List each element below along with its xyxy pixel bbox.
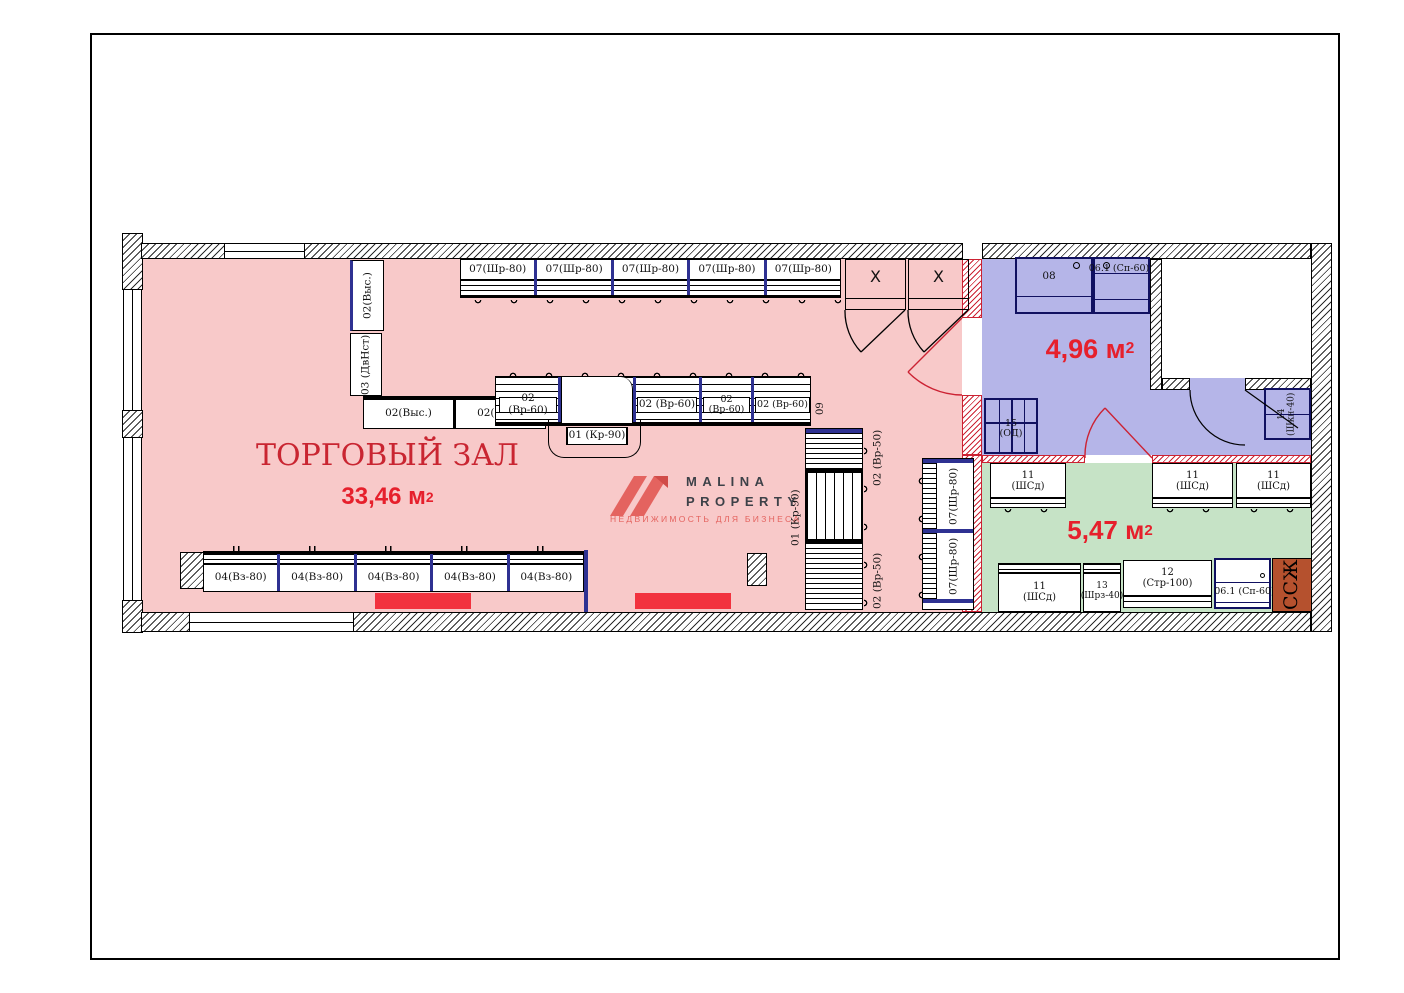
fitting-room-door-1: [845, 310, 905, 352]
fitting-room-door-2: [908, 310, 968, 352]
logo-m-icon: [606, 472, 678, 518]
logo: MALINA PROPERTY НЕДВИЖИМОСТЬ ДЛЯ БИЗНЕСА: [606, 468, 811, 528]
door-void-room: [1190, 390, 1298, 445]
logo-name: MALINA PROPERTY: [686, 472, 802, 512]
logo-tagline: НЕДВИЖИМОСТЬ ДЛЯ БИЗНЕСА: [610, 514, 801, 524]
door-hall-to-back: [908, 318, 962, 395]
logo-name-line2: PROPERTY: [686, 492, 802, 512]
floor-plan-page: 07(Шр-80) 07(Шр-80) 07(Шр-80) 07(Шр-80) …: [0, 0, 1404, 993]
door-back-to-green: [1085, 408, 1152, 458]
logo-name-line1: MALINA: [686, 472, 802, 492]
